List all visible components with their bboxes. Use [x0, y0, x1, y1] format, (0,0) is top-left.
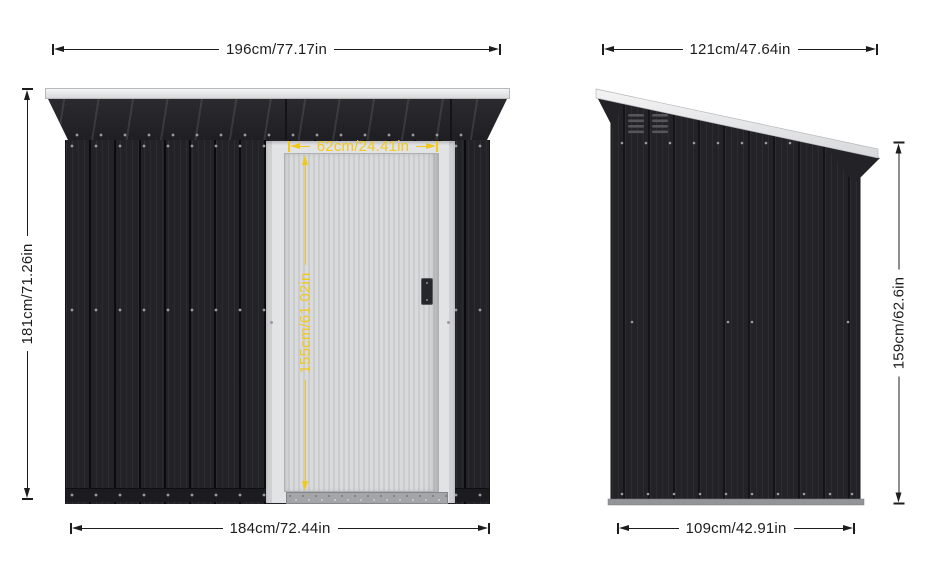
dimension-side-overall-depth: 121cm/47.64in: [602, 40, 878, 58]
arrowhead-right-icon: [866, 46, 876, 52]
dim-end-tick: [22, 498, 33, 500]
shed-side-view: [585, 78, 895, 510]
dim-end-tick: [893, 142, 904, 144]
dim-line: [416, 146, 426, 147]
arrowhead-right-icon: [478, 525, 488, 531]
shed-front-view: [45, 88, 510, 504]
dimension-label: 196cm/77.17in: [219, 41, 334, 58]
dimension-door-width: 62cm/24.41in: [288, 137, 438, 155]
dimension-label: 184cm/72.44in: [223, 520, 338, 537]
dimension-label: 121cm/47.64in: [683, 41, 798, 58]
door-threshold-ramp: [286, 492, 448, 504]
base-strip: [608, 499, 864, 505]
dim-line: [898, 376, 899, 492]
dim-end-tick: [488, 523, 490, 534]
dim-end-tick: [876, 44, 878, 55]
arrowhead-left-icon: [619, 525, 629, 531]
rivet: [447, 321, 450, 324]
arrowhead-up-icon: [24, 90, 30, 100]
dim-line: [305, 165, 306, 266]
arrowhead-left-icon: [604, 46, 614, 52]
dim-line: [794, 528, 844, 529]
arrowhead-up-icon: [896, 144, 902, 154]
dim-end-tick: [499, 44, 501, 55]
dim-line: [898, 154, 899, 270]
roof-fascia: [45, 99, 510, 140]
dim-line: [82, 528, 223, 529]
dim-line: [629, 528, 679, 529]
arrowhead-right-icon: [489, 46, 499, 52]
dim-end-tick: [893, 503, 904, 505]
side-wall: [611, 101, 860, 500]
arrowhead-left-icon: [290, 143, 300, 149]
dim-end-tick: [436, 141, 438, 152]
dim-line: [300, 146, 310, 147]
dimension-label: 181cm/71.26in: [19, 236, 36, 351]
arrowhead-left-icon: [72, 525, 82, 531]
dimension-label: 109cm/42.91in: [679, 520, 794, 537]
dim-line: [334, 49, 489, 50]
dimension-side-wall-height: 159cm/62.6in: [890, 142, 908, 505]
dim-line: [614, 49, 683, 50]
door-frame: [266, 141, 455, 503]
arrowhead-down-icon: [896, 493, 902, 503]
roof-trim-front: [45, 88, 510, 99]
dim-line: [27, 352, 28, 489]
dimension-front-overall-height: 181cm/71.26in: [18, 88, 36, 500]
dimension-label: 155cm/61.02in: [297, 265, 314, 380]
dimension-label: 62cm/24.41in: [310, 138, 416, 155]
arrowhead-right-icon: [426, 143, 436, 149]
dim-end-tick: [853, 523, 855, 534]
dim-line: [27, 100, 28, 237]
dim-line: [64, 49, 219, 50]
dim-line: [798, 49, 867, 50]
dim-line: [338, 528, 479, 529]
dim-end-tick: [22, 88, 33, 90]
arrowhead-down-icon: [24, 488, 30, 498]
arrowhead-left-icon: [54, 46, 64, 52]
dimension-door-height: 155cm/61.02in: [296, 155, 314, 491]
dim-line: [305, 381, 306, 482]
arrowhead-up-icon: [302, 155, 308, 165]
dimension-front-base-width: 184cm/72.44in: [70, 519, 490, 537]
dimension-label: 159cm/62.6in: [890, 270, 907, 376]
arrowhead-down-icon: [302, 481, 308, 491]
dimension-side-base-depth: 109cm/42.91in: [617, 519, 855, 537]
arrowhead-right-icon: [843, 525, 853, 531]
door-handle: [421, 278, 433, 305]
dimension-front-overall-width: 196cm/77.17in: [52, 40, 501, 58]
rivet: [270, 321, 273, 324]
